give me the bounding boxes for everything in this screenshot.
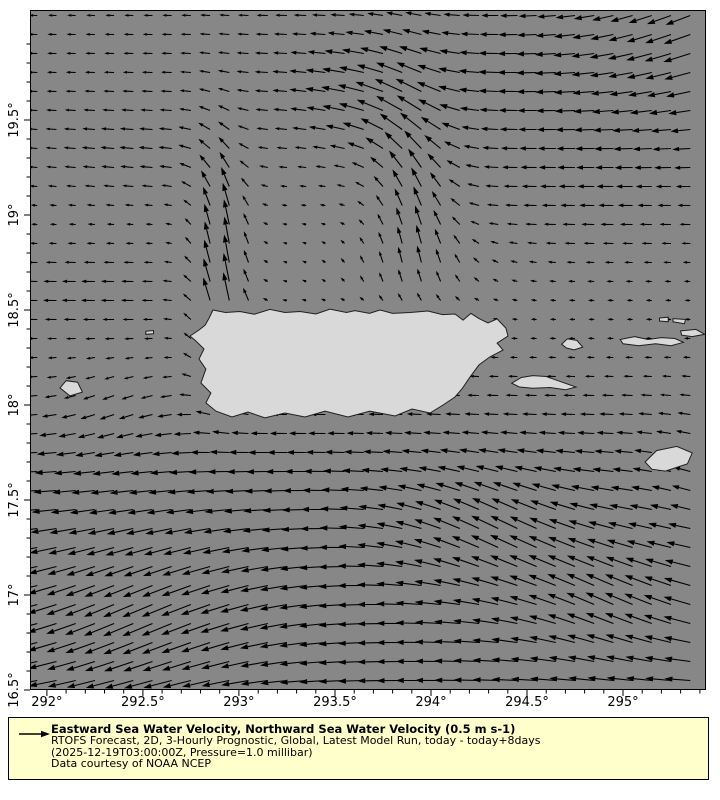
y-tick-label: 18.5° (7, 292, 22, 327)
island-desecheo-island (146, 331, 154, 335)
x-tick-label: 292° (31, 695, 62, 710)
y-tick-label: 17° (7, 583, 22, 606)
velocity-quiver-chart: 292°292.5°293°293.5°294°294.5°295°16.5°1… (0, 0, 720, 712)
x-tick-label: 292.5° (121, 695, 165, 710)
legend-credit: Data courtesy of NOAA NCEP (51, 758, 704, 770)
legend-subtitle: RTOFS Forecast, 2D, 3-Hourly Prognostic,… (51, 735, 704, 747)
y-tick-label: 17.5° (7, 482, 22, 517)
x-tick-label: 294.5° (505, 695, 549, 710)
x-tick-label: 293.5° (313, 695, 357, 710)
y-tick-label: 19.5° (7, 102, 22, 137)
legend-text-block: Eastward Sea Water Velocity, Northward S… (51, 723, 704, 770)
y-tick-label: 19° (7, 203, 22, 226)
x-tick-label: 294° (415, 695, 446, 710)
screenshot-root: { "colors": { "page_bg": "#ffffff", "sea… (0, 0, 720, 800)
y-tick-label: 16.5° (7, 672, 22, 707)
island-jost-van-dyke (660, 317, 669, 322)
legend-box: Eastward Sea Water Velocity, Northward S… (8, 717, 709, 780)
reference-arrow-icon (17, 729, 53, 739)
y-tick-label: 18° (7, 393, 22, 416)
x-tick-label: 293° (223, 695, 254, 710)
x-tick-label: 295° (607, 695, 638, 710)
